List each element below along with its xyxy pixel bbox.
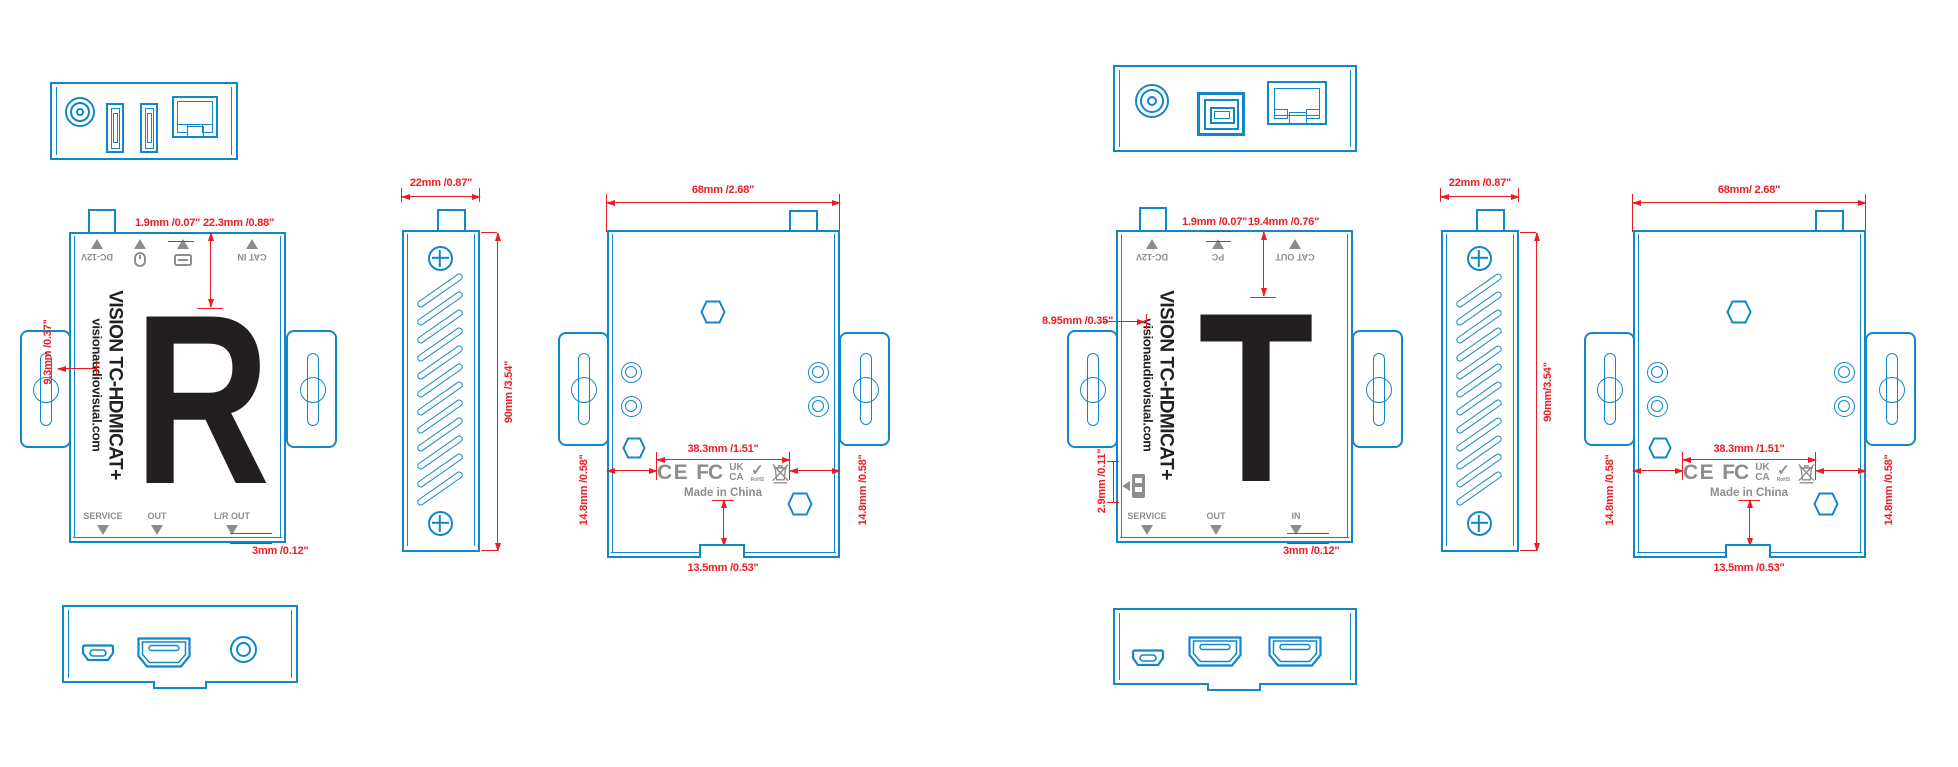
transmitter-plate-wing-left	[1584, 332, 1635, 446]
rohs-check-icon: ✓RoHS	[1777, 463, 1791, 483]
transmitter-mount-wing-right	[1352, 330, 1403, 448]
hex-standoff-icon	[1648, 437, 1672, 459]
transmitter-side-tab	[1476, 209, 1505, 232]
transmitter-mount-wing-left	[1067, 330, 1118, 448]
rear-label-power: DC-12V	[1136, 252, 1168, 262]
hdmi-port	[1267, 635, 1323, 668]
screw-hole	[1647, 362, 1668, 383]
dim-side-left-label: 14.8mm /0.58"	[1604, 454, 1616, 525]
dim-top-offset-line	[1263, 232, 1264, 296]
dim-height-line	[1536, 233, 1537, 551]
transmitter-top-face-view: DC-12V PC CAT OUT VISION TC-HDMICAT+ vis…	[1116, 230, 1353, 543]
dim-notch-label: 13.5mm /0.53"	[1713, 562, 1784, 574]
hex-standoff-icon	[1813, 492, 1839, 516]
screw-hole	[1834, 396, 1855, 417]
rear-label-pc: PC	[1212, 252, 1225, 262]
transmitter-top-tab	[1139, 207, 1167, 232]
screw-hole	[1834, 362, 1855, 383]
dim-width-label: 68mm/ 2.68"	[1718, 184, 1780, 196]
ukca-mark-icon: UKCA	[1755, 463, 1769, 483]
dim-side-right-label: 14.8mm /0.58"	[1883, 454, 1895, 525]
dc-jack-pin	[1147, 96, 1157, 106]
dim-label-span-line	[1683, 459, 1816, 460]
dim-label-span: 38.3mm /1.51"	[1713, 443, 1784, 455]
front-panel-tab	[153, 681, 207, 689]
dim-height-label: 90mm/3.54"	[1542, 362, 1554, 421]
transmitter-rear-panel-view	[1113, 65, 1357, 152]
dimension-drawing: DC-12V CAT IN VISION TC-HDMICAT+ visiona…	[0, 0, 1958, 767]
fcc-mark-icon: FC	[1722, 461, 1748, 485]
dim-notch-line	[1749, 500, 1750, 546]
port-marker-dc	[1146, 239, 1158, 249]
transmitter-drawing-group: DC-12V PC CAT OUT VISION TC-HDMICAT+ vis…	[0, 0, 1958, 767]
port-marker-cat	[1289, 239, 1301, 249]
ce-mark-icon: CE	[1683, 461, 1715, 485]
screw-icon-top	[1467, 246, 1492, 271]
dim-gap-label: 1.9mm /0.07"	[1182, 216, 1247, 228]
dim-side-left-line	[1633, 470, 1683, 471]
dim-switch-offset-label: 2.9mm /0.11"	[1096, 449, 1108, 514]
dim-side-right-line	[1816, 470, 1866, 471]
dim-width-line	[1633, 202, 1866, 203]
dim-bottom-gap-label: 3mm /0.12"	[1283, 545, 1339, 557]
dim-brand-offset-line	[1103, 321, 1145, 322]
dim-depth-label: 22mm /0.87"	[1449, 177, 1511, 189]
unit-letter: T	[1198, 277, 1313, 519]
vent-slots	[1451, 287, 1509, 499]
rear-label-cat: CAT OUT	[1275, 252, 1314, 262]
origin-text: Made in China	[1710, 487, 1788, 499]
transmitter-side-view	[1441, 230, 1519, 552]
front-label-service: SERVICE	[1127, 511, 1166, 521]
front-panel-tab	[1207, 683, 1261, 691]
hdmi-port	[1187, 635, 1243, 668]
transmitter-plate-wing-right	[1865, 332, 1916, 446]
front-label-out: OUT	[1207, 511, 1226, 521]
screw-hole	[1647, 396, 1668, 417]
dim-switch-offset-line	[1113, 462, 1114, 502]
micro-usb-port	[1131, 648, 1165, 668]
weee-bin-icon	[1797, 460, 1816, 486]
plate-bottom-notch	[1725, 544, 1771, 558]
dip-switch-icon	[1132, 474, 1145, 498]
dip-switch-marker	[1122, 481, 1130, 491]
rj45-port	[1267, 81, 1327, 125]
hex-standoff-icon	[1726, 300, 1752, 324]
plate-bottom-notch	[699, 544, 745, 558]
dim-top-offset-label: 19.4mm /0.76"	[1248, 216, 1319, 228]
certification-marks: CE FC UKCA ✓RoHS	[1683, 458, 1816, 488]
transmitter-front-panel-view	[1113, 608, 1357, 685]
front-label-in: IN	[1292, 511, 1301, 521]
brand-line1: VISION TC-HDMICAT+	[1155, 290, 1177, 480]
transmitter-plate-tab	[1815, 210, 1844, 232]
dim-depth-line	[1441, 196, 1519, 197]
usb-b-port	[1197, 92, 1245, 136]
screw-icon-bottom	[1467, 511, 1492, 536]
